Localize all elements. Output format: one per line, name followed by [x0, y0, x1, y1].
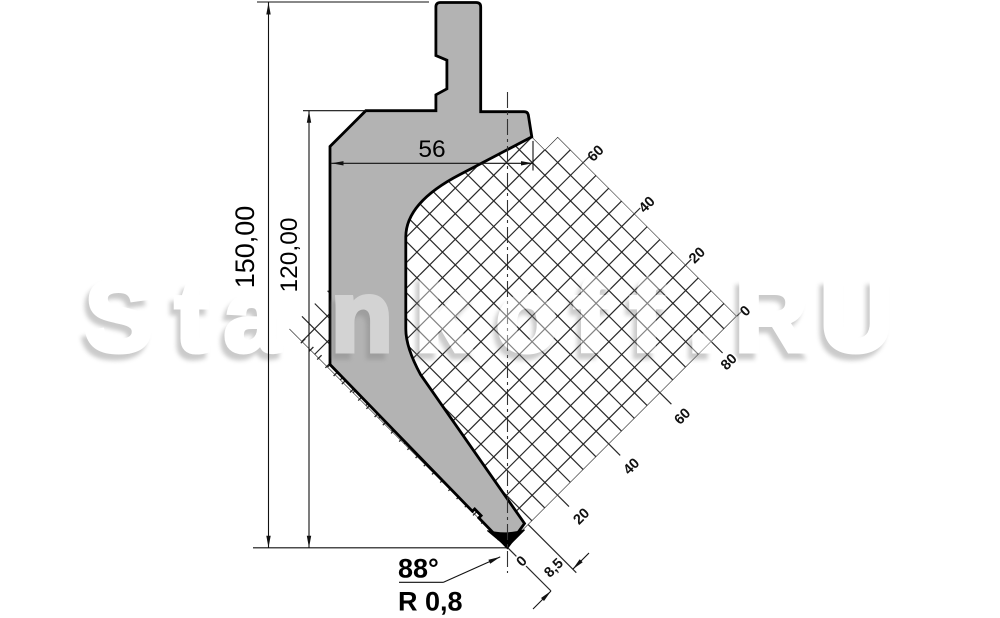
svg-text:20: 20: [570, 505, 593, 528]
svg-text:60: 60: [671, 405, 694, 428]
svg-text:88°: 88°: [398, 554, 439, 584]
svg-text:40: 40: [636, 194, 659, 217]
svg-text:150,00: 150,00: [230, 206, 260, 289]
svg-text:60: 60: [585, 142, 608, 165]
svg-text:120,00: 120,00: [276, 218, 303, 293]
svg-text:56: 56: [418, 136, 445, 163]
svg-text:R 0,8: R 0,8: [398, 587, 463, 617]
svg-text:40: 40: [620, 455, 643, 478]
